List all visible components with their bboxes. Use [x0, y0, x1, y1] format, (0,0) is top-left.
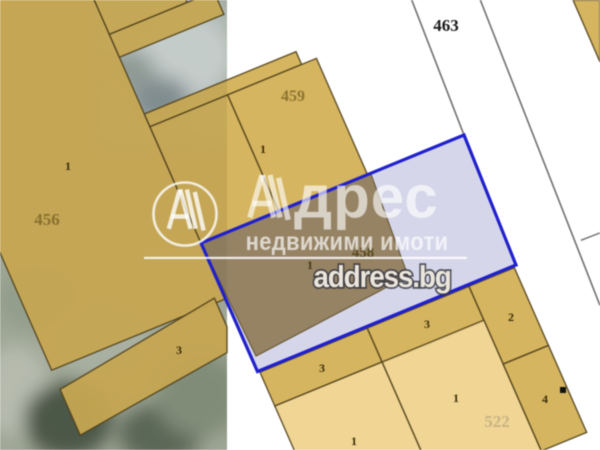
- svg-text:1: 1: [65, 159, 71, 173]
- svg-text:address.bg: address.bg: [313, 260, 450, 295]
- svg-text:1: 1: [307, 258, 313, 272]
- svg-text:3: 3: [424, 317, 430, 331]
- svg-text:1: 1: [351, 434, 357, 448]
- svg-text:456: 456: [34, 210, 60, 229]
- svg-text:3: 3: [319, 361, 325, 375]
- svg-text:1: 1: [453, 391, 459, 405]
- svg-text:1: 1: [260, 142, 266, 156]
- svg-text:4: 4: [542, 392, 548, 406]
- svg-text:522: 522: [484, 412, 510, 431]
- svg-text:дрес: дрес: [294, 164, 439, 231]
- svg-text:2: 2: [508, 310, 514, 324]
- svg-text:3: 3: [176, 343, 182, 357]
- svg-text:463: 463: [433, 16, 459, 35]
- svg-text:недвижими имоти: недвижими имоти: [246, 228, 449, 255]
- svg-text:459: 459: [281, 88, 305, 105]
